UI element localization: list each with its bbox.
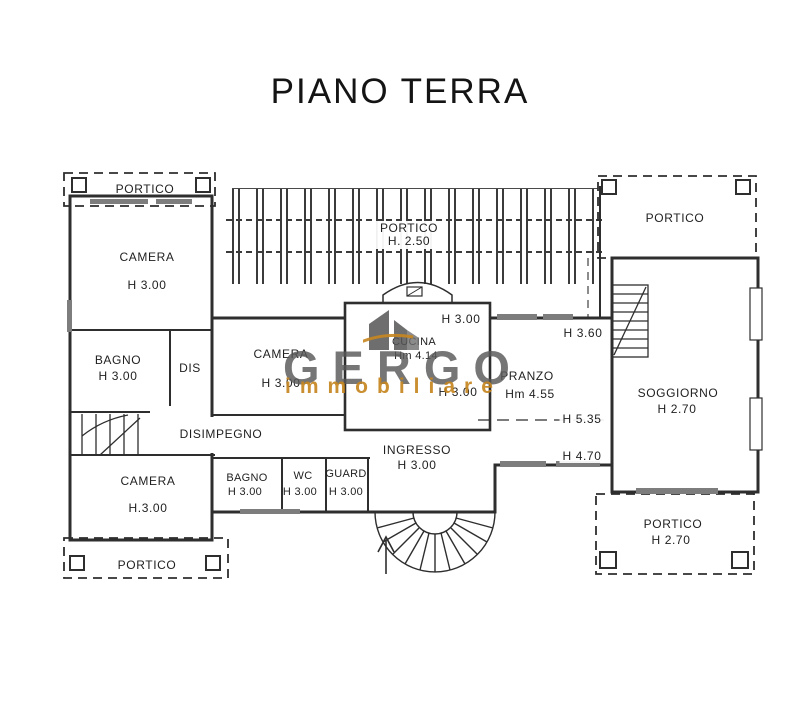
window-recess (750, 398, 762, 450)
column-post (72, 178, 86, 192)
room-label-disimpegno: DISIMPEGNO (180, 428, 263, 441)
room-label-cucina: CUCINA (392, 336, 436, 349)
annotation-h-5-35: H 5.35 (560, 413, 605, 426)
room-label-portico-center: PORTICO H. 2.50 (376, 221, 442, 249)
room-label-bagno-left: BAGNO (95, 354, 141, 367)
height-label-wc: H 3.00 (283, 486, 317, 499)
annotation-h-mid: H 3.00 (436, 386, 481, 399)
annotation-h-4-70: H 4.70 (560, 450, 605, 463)
height-label-guard: H 3.00 (329, 486, 363, 499)
room-label-portico-bottom-left: PORTICO (118, 559, 177, 572)
column-post (70, 556, 84, 570)
annotation-h-3-60: H 3.60 (561, 327, 606, 340)
column-post (732, 552, 748, 568)
room-label-portico-top-left: PORTICO (116, 183, 175, 196)
height-label-camera-bottom-left: H.3.00 (129, 502, 168, 515)
window-recess (750, 288, 762, 340)
chimney-mark-diagonal (407, 287, 422, 296)
room-label-ingresso: INGRESSO (383, 444, 451, 457)
room-label-portico-top-right: PORTICO (646, 212, 705, 225)
room-label-camera-top-left: CAMERA (120, 251, 175, 264)
column-post (736, 180, 750, 194)
column-post (196, 178, 210, 192)
south-facade-wall (212, 465, 612, 512)
height-label-cucina: Hm 4.14 (394, 350, 438, 363)
height-label-camera-top-left: H 3.00 (128, 279, 167, 292)
room-label-camera-bottom-left: CAMERA (121, 475, 176, 488)
room-label-guard: GUARD (325, 468, 366, 481)
height-label-ingresso: H 3.00 (398, 459, 437, 472)
room-label-camera-center: CAMERA (254, 348, 309, 361)
stair-straight (612, 285, 648, 357)
column-post (602, 180, 616, 194)
portico-center-height: H. 2.50 (380, 235, 438, 248)
height-label-soggiorno: H 2.70 (658, 403, 697, 416)
column-post (600, 552, 616, 568)
height-label-bagno-left: H 3.00 (99, 370, 138, 383)
room-label-pranzo: PRANZO (500, 370, 554, 383)
entrance-arrow (378, 537, 394, 574)
annotation-h-top: H 3.00 (439, 313, 484, 326)
height-label-bagno-center: H 3.00 (228, 486, 262, 499)
room-label-bagno-center: BAGNO (226, 472, 267, 485)
height-label-camera-center: H 3.00 (262, 377, 301, 390)
soggiorno-walls (612, 258, 758, 492)
height-label-portico-bottom-right: H 2.70 (652, 534, 691, 547)
room-label-soggiorno: SOGGIORNO (638, 387, 719, 400)
room-label-portico-bottom-right: PORTICO (644, 518, 703, 531)
stair-winder (82, 414, 148, 455)
column-post (206, 556, 220, 570)
stair-fan (375, 512, 495, 572)
room-label-wc: WC (294, 470, 313, 483)
room-label-dis: DIS (179, 362, 201, 375)
floorplan-page: PIANO TERRA (0, 0, 800, 711)
height-label-pranzo: Hm 4.55 (505, 388, 555, 401)
arch-bay (383, 283, 452, 304)
